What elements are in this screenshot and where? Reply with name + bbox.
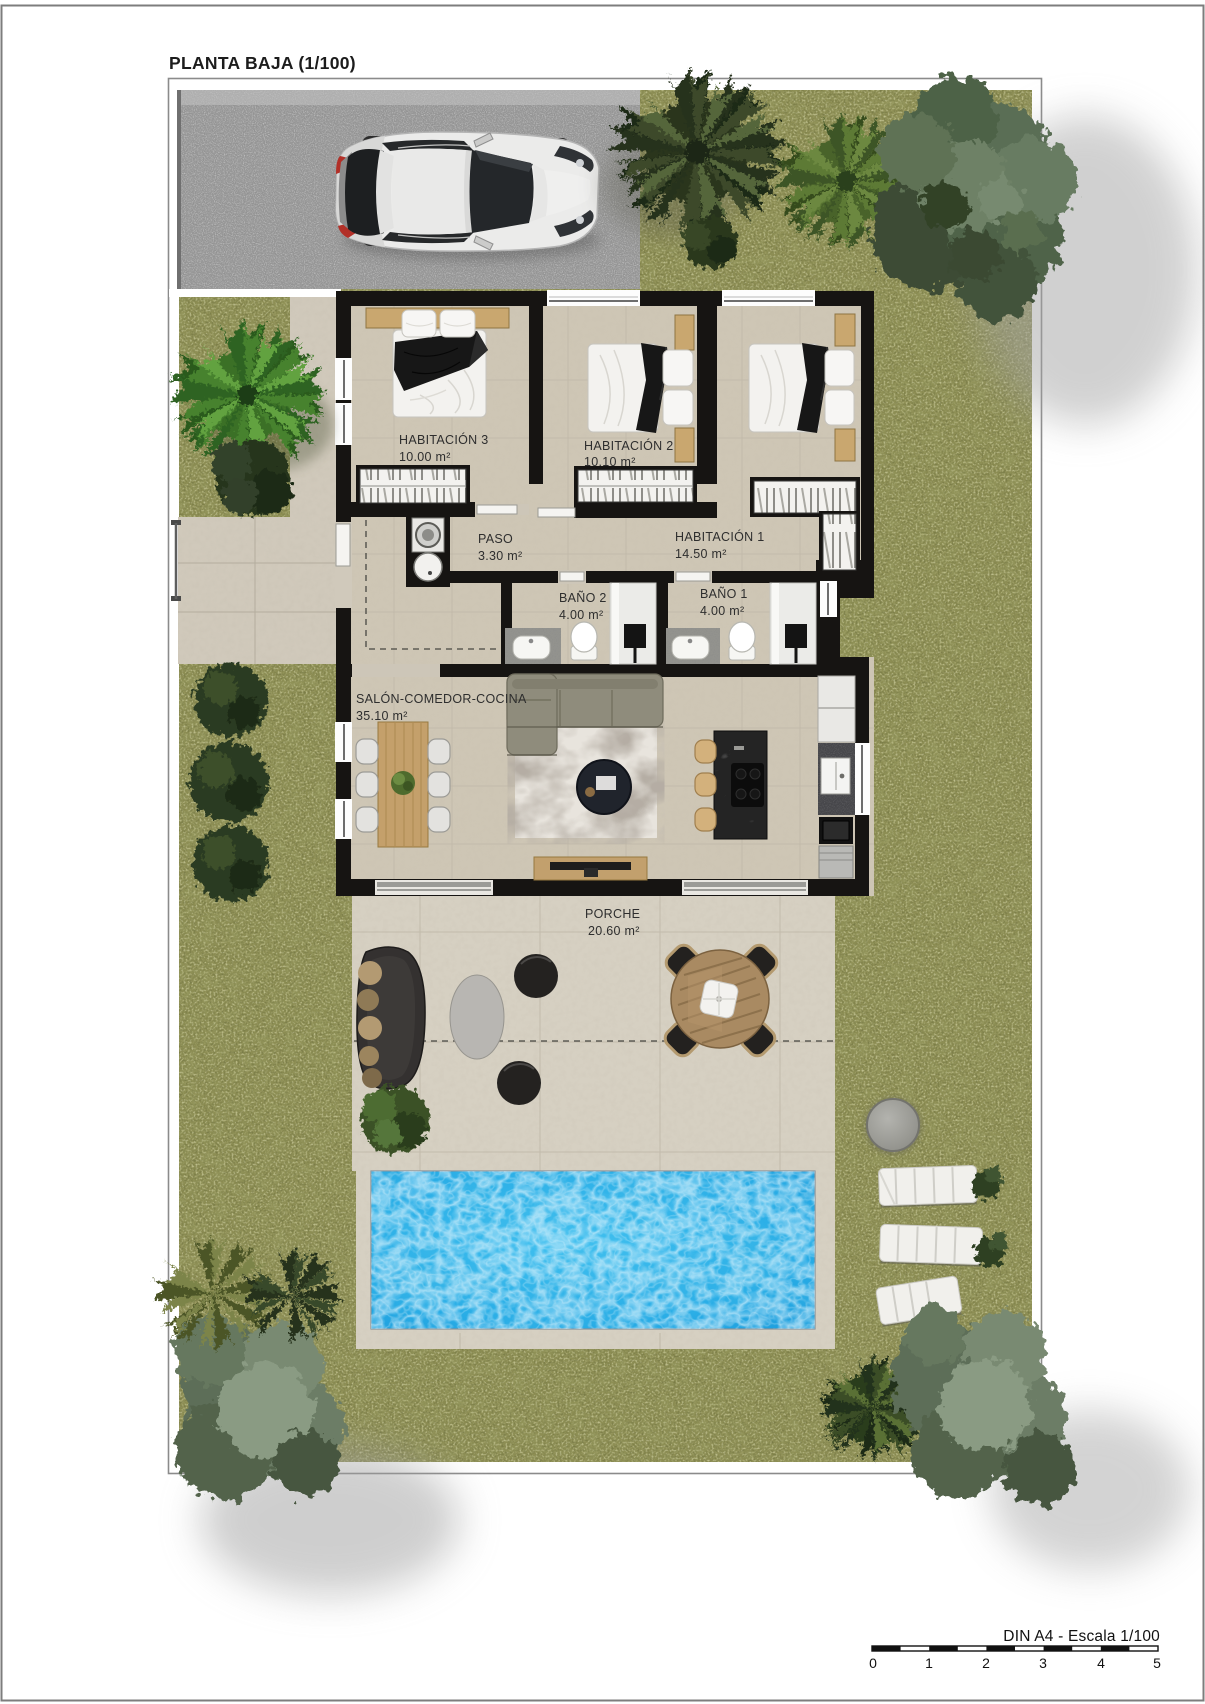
svg-text:BAÑO 1: BAÑO 1: [700, 587, 748, 601]
svg-text:PORCHE: PORCHE: [585, 907, 640, 921]
svg-text:HABITACIÓN 1: HABITACIÓN 1: [675, 529, 765, 544]
svg-text:HABITACIÓN 2: HABITACIÓN 2: [584, 438, 674, 453]
svg-text:4.00 m²: 4.00 m²: [700, 604, 744, 618]
svg-text:PLANTA BAJA (1/100): PLANTA BAJA (1/100): [169, 53, 356, 73]
svg-text:2: 2: [982, 1655, 990, 1671]
svg-text:3.30 m²: 3.30 m²: [478, 549, 522, 563]
svg-text:1: 1: [925, 1655, 933, 1671]
svg-text:HABITACIÓN 3: HABITACIÓN 3: [399, 432, 489, 447]
svg-text:10.10 m²: 10.10 m²: [584, 455, 636, 469]
svg-text:4: 4: [1097, 1655, 1105, 1671]
svg-text:35.10 m²: 35.10 m²: [356, 709, 408, 723]
svg-text:3: 3: [1039, 1655, 1047, 1671]
svg-text:14.50 m²: 14.50 m²: [675, 547, 727, 561]
svg-text:DIN A4 - Escala 1/100: DIN A4 - Escala 1/100: [1003, 1628, 1160, 1645]
svg-text:20.60 m²: 20.60 m²: [588, 924, 640, 938]
svg-text:10.00 m²: 10.00 m²: [399, 450, 451, 464]
svg-text:SALÓN-COMEDOR-COCINA: SALÓN-COMEDOR-COCINA: [356, 691, 527, 706]
svg-text:BAÑO 2: BAÑO 2: [559, 591, 607, 605]
svg-text:5: 5: [1153, 1655, 1161, 1671]
svg-text:0: 0: [869, 1655, 877, 1671]
svg-text:4.00 m²: 4.00 m²: [559, 608, 603, 622]
svg-text:PASO: PASO: [478, 532, 513, 546]
